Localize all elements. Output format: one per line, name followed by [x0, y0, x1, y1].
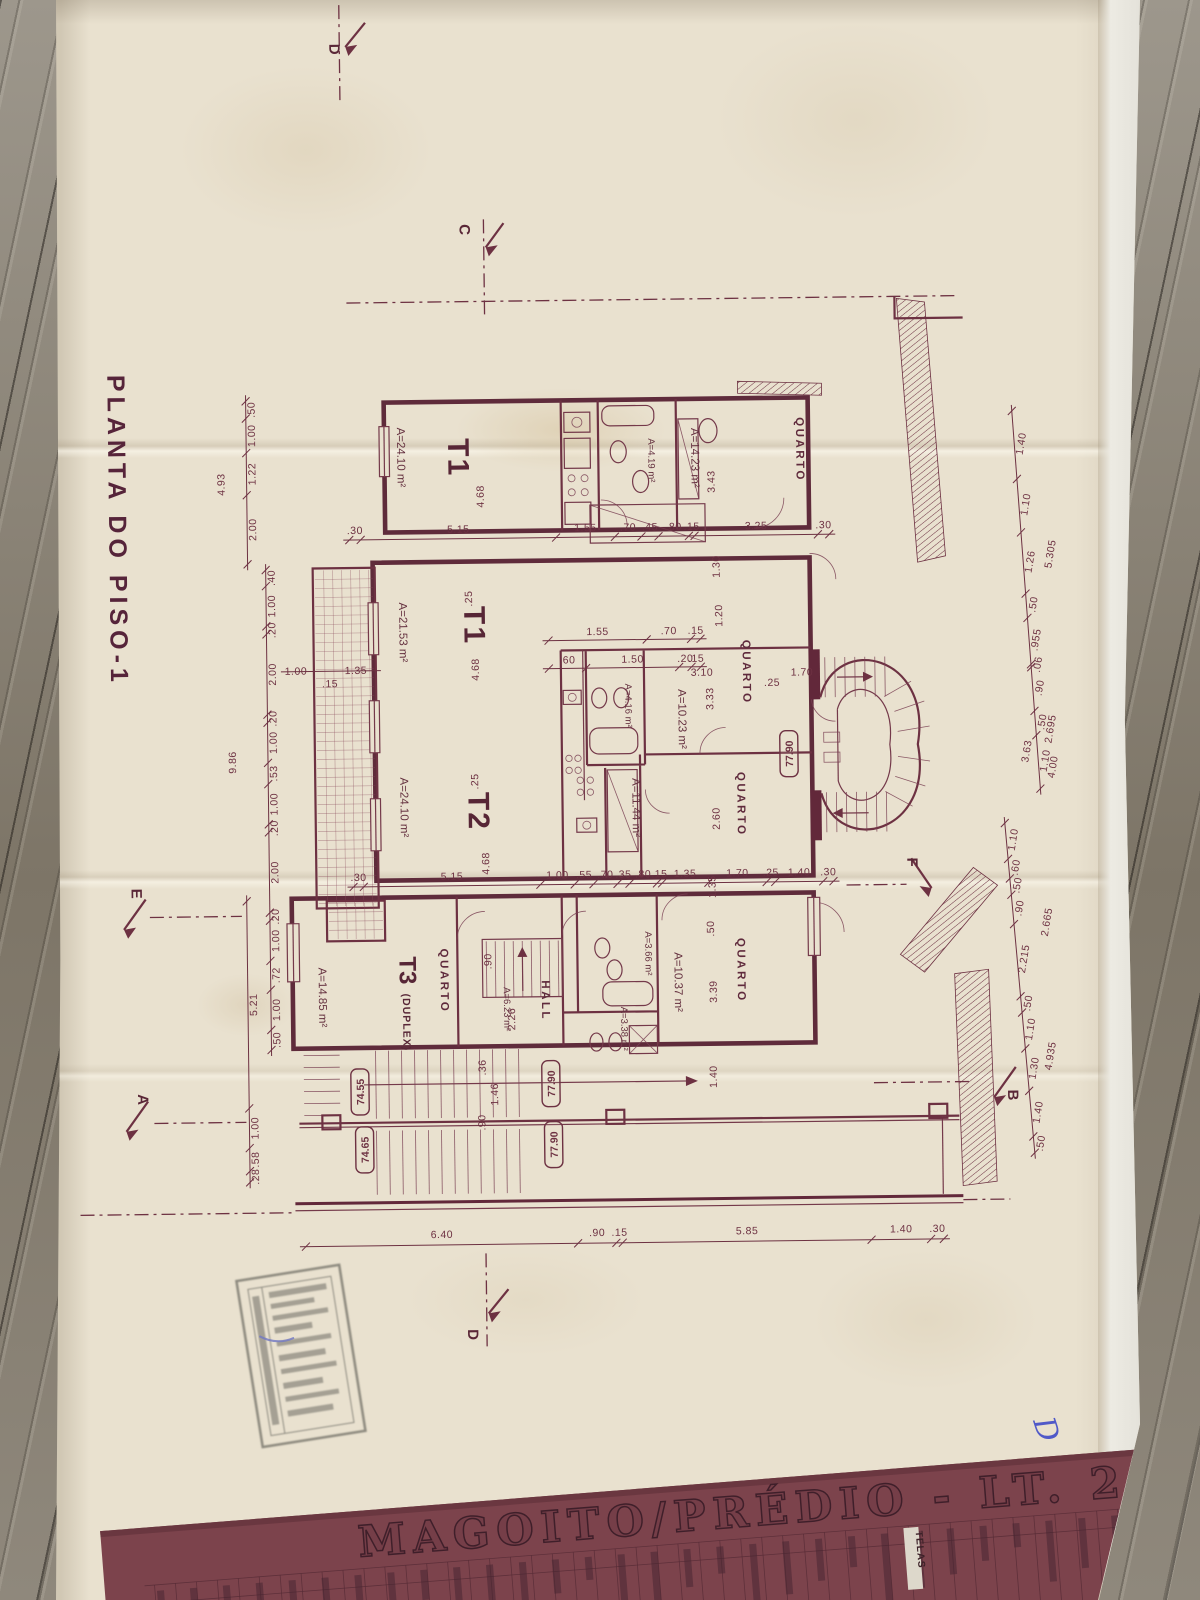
svg-text:3.10: 3.10: [691, 667, 714, 679]
svg-text:.30: .30: [929, 1223, 945, 1235]
svg-text:4.00: 4.00: [1045, 755, 1060, 779]
svg-text:1.00: 1.00: [249, 1117, 261, 1140]
svg-text:5.85: 5.85: [736, 1225, 759, 1237]
room-label-quarto: QUARTO: [437, 949, 450, 1014]
area-label: A=11.44 m²: [629, 778, 642, 837]
svg-text:B: B: [1004, 1089, 1021, 1100]
svg-text:.20: .20: [267, 710, 279, 726]
svg-text:.28: .28: [250, 1169, 262, 1185]
svg-text:4.935: 4.935: [1042, 1041, 1058, 1071]
svg-text:1.26: 1.26: [1023, 550, 1038, 574]
svg-text:2.215: 2.215: [1016, 944, 1032, 974]
svg-text:.60: .60: [559, 654, 575, 666]
svg-text:1.55: 1.55: [574, 522, 597, 534]
svg-text:.90: .90: [1012, 899, 1026, 917]
floor-plan-drawing: .501.001.222.00.401.00.202.00.201.00.531…: [0, 0, 1200, 1600]
svg-text:2.00: 2.00: [247, 518, 259, 541]
svg-text:74.55: 74.55: [355, 1079, 367, 1106]
svg-text:2.00: 2.00: [267, 663, 279, 686]
svg-text:1.22: 1.22: [246, 463, 258, 486]
room-label-quarto: QUARTO: [734, 938, 747, 1003]
svg-text:4.93: 4.93: [215, 473, 227, 496]
svg-text:1.40: 1.40: [890, 1223, 913, 1235]
svg-text:.06: .06: [1031, 656, 1045, 674]
svg-text:3.63: 3.63: [1019, 739, 1034, 763]
area-label: A=4.19 m²: [645, 438, 657, 482]
area-label: A=10.23 m²: [675, 689, 688, 749]
svg-text:1.40: 1.40: [1014, 432, 1029, 456]
svg-text:.70: .70: [661, 625, 677, 637]
svg-text:1.30: 1.30: [1027, 1056, 1042, 1080]
svg-text:.50: .50: [705, 921, 717, 937]
svg-text:.70: .70: [620, 522, 636, 534]
svg-text:1.40: 1.40: [1031, 1100, 1046, 1124]
area-label: A=3.66 m²: [642, 931, 654, 975]
svg-text:1.00: 1.00: [268, 731, 280, 754]
unit-label-t3: T3: [393, 956, 420, 984]
svg-text:5.21: 5.21: [248, 993, 260, 1016]
svg-text:1.70: 1.70: [726, 867, 749, 879]
svg-text:.90: .90: [589, 1227, 605, 1239]
section-marker-b: B: [874, 1067, 1021, 1108]
svg-text:F: F: [903, 858, 920, 867]
svg-text:.15: .15: [688, 653, 704, 665]
svg-text:A: A: [134, 1094, 151, 1105]
svg-text:1.10: 1.10: [1018, 492, 1033, 516]
svg-text:1.40: 1.40: [788, 866, 811, 878]
svg-text:1.00: 1.00: [271, 999, 283, 1022]
svg-text:.50: .50: [271, 1032, 283, 1048]
svg-text:.58: .58: [250, 1151, 262, 1167]
section-marker-d-bottom: D: [463, 1253, 509, 1347]
svg-text:.25: .25: [764, 677, 780, 689]
svg-text:1.00: 1.00: [268, 793, 280, 816]
svg-text:.955: .955: [1028, 628, 1043, 652]
svg-text:.35: .35: [615, 869, 631, 881]
hatch-slope-wing: [899, 867, 998, 972]
svg-text:.80: .80: [665, 521, 681, 533]
area-label: A=14.85 m²: [316, 967, 329, 1027]
svg-text:.15: .15: [651, 868, 667, 880]
svg-text:E: E: [128, 889, 145, 899]
svg-text:2.00: 2.00: [269, 861, 281, 884]
svg-text:1.00: 1.00: [270, 929, 282, 952]
svg-text:.45: .45: [642, 521, 658, 533]
svg-text:.15: .15: [683, 521, 699, 533]
svg-text:3.39: 3.39: [708, 980, 720, 1003]
svg-text:.15: .15: [611, 1227, 627, 1239]
svg-text:.20: .20: [269, 820, 281, 836]
svg-text:2.60: 2.60: [711, 807, 723, 830]
svg-text:.15: .15: [688, 625, 704, 637]
svg-text:.90: .90: [482, 953, 494, 969]
room-label-quarto: QUARTO: [740, 640, 753, 705]
svg-text:.20: .20: [266, 622, 278, 638]
svg-text:.50: .50: [1034, 1134, 1048, 1152]
unit-label-t2: T2: [461, 792, 494, 831]
unit-label-t1-top: T1: [441, 438, 474, 477]
unit-label-t1-mid: T1: [457, 606, 490, 645]
svg-text:.25: .25: [463, 590, 475, 606]
svg-text:.30: .30: [347, 525, 363, 537]
handwritten-mark: D: [1025, 1412, 1066, 1447]
svg-text:.30: .30: [815, 519, 831, 531]
svg-text:.20: .20: [270, 908, 282, 924]
svg-text:1.30: 1.30: [711, 555, 723, 578]
svg-text:.50: .50: [246, 402, 258, 418]
svg-text:9.86: 9.86: [227, 751, 239, 774]
svg-text:.72: .72: [271, 967, 283, 983]
section-marker-e: E: [124, 887, 243, 938]
svg-text:1.00: 1.00: [246, 424, 258, 447]
exterior-stairs: [299, 1044, 961, 1202]
hatch-strip-top: [737, 380, 821, 396]
area-label: A=10.37 m²: [671, 952, 684, 1012]
svg-text:.70: .70: [597, 869, 613, 881]
room-label-quarto: QUARTO: [793, 417, 806, 482]
svg-text:1.20: 1.20: [713, 604, 725, 627]
svg-text:6.40: 6.40: [431, 1229, 454, 1241]
plan-linework: .501.001.222.00.401.00.202.00.201.00.531…: [66, 0, 1069, 1351]
elevation-marker: 77.90: [780, 731, 799, 777]
elevation-marker: 77.90: [542, 1061, 561, 1107]
unit-label-t3-duplex: (DUPLEX): [400, 994, 413, 1052]
hatch-retaining-wall-right: [896, 298, 945, 563]
section-marker-f: F: [846, 857, 931, 898]
svg-text:.80: .80: [635, 868, 651, 880]
svg-text:2.665: 2.665: [1039, 907, 1055, 937]
area-label: A=14.23 m²: [688, 428, 701, 488]
svg-text:1.35: 1.35: [706, 875, 718, 898]
svg-text:.25: .25: [763, 867, 779, 879]
svg-text:D: D: [464, 1329, 481, 1340]
svg-text:1.55: 1.55: [586, 626, 609, 638]
svg-text:.60: .60: [1009, 858, 1023, 876]
svg-text:3.33: 3.33: [704, 687, 716, 710]
elevation-marker: 74.55: [351, 1069, 370, 1115]
svg-text:.50: .50: [1021, 994, 1035, 1012]
svg-text:C: C: [455, 224, 472, 235]
svg-text:1.70: 1.70: [791, 666, 814, 678]
svg-text:.50: .50: [1026, 596, 1040, 614]
svg-text:.53: .53: [268, 765, 280, 781]
area-label: A=24.10 m²: [394, 427, 407, 487]
svg-text:77.90: 77.90: [784, 740, 796, 767]
svg-text:1.10: 1.10: [1023, 1017, 1038, 1041]
svg-text:5.15: 5.15: [447, 524, 470, 536]
svg-text:1.10: 1.10: [1006, 828, 1021, 852]
svg-text:.50: .50: [1010, 876, 1024, 894]
svg-text:.30: .30: [820, 866, 836, 878]
svg-text:1.00: 1.00: [546, 869, 569, 881]
svg-text:D: D: [325, 44, 342, 55]
balcony-tile-grid: [315, 570, 377, 907]
svg-text:4.68: 4.68: [475, 485, 487, 508]
svg-text:.15: .15: [322, 678, 338, 690]
svg-text:3.43: 3.43: [705, 470, 717, 493]
elevation-marker: 77.90: [544, 1121, 563, 1167]
svg-text:1.46: 1.46: [489, 1083, 501, 1106]
site-boundary-top: [346, 296, 954, 303]
svg-text:1.35: 1.35: [345, 665, 368, 677]
svg-text:.40: .40: [266, 570, 278, 586]
area-label: A=6.23 m²: [501, 987, 513, 1031]
svg-text:.36: .36: [477, 1059, 489, 1075]
area-label: A=3.38 m²: [618, 1007, 630, 1051]
section-marker-d-top: D: [325, 5, 366, 103]
svg-text:.55: .55: [576, 869, 592, 881]
area-label: A=4.16 m²: [622, 684, 634, 728]
room-label-hall: HALL: [539, 980, 551, 1021]
elevation-marker: 74.65: [355, 1127, 374, 1173]
svg-text:1.00: 1.00: [266, 595, 278, 618]
ground-line-ext-right: [963, 1199, 1010, 1200]
svg-text:.30: .30: [350, 872, 366, 884]
svg-text:.25: .25: [469, 773, 481, 789]
title-block-band: MAGOITO/PRÉDIO - LT. 2A TELAS: [100, 1447, 1181, 1600]
stair-tower: [809, 648, 931, 840]
room-label-quarto: QUARTO: [734, 772, 747, 837]
area-label: A=24.10 m²: [397, 777, 410, 837]
svg-text:4.68: 4.68: [470, 658, 482, 681]
ground-line: [295, 1196, 963, 1204]
svg-text:77.90: 77.90: [549, 1131, 561, 1158]
svg-text:1.00: 1.00: [285, 666, 308, 678]
svg-text:3.25: 3.25: [745, 520, 768, 532]
section-marker-c: C: [455, 219, 504, 320]
svg-text:74.65: 74.65: [360, 1137, 372, 1164]
svg-text:4.68: 4.68: [480, 852, 492, 875]
svg-text:.90: .90: [476, 1114, 488, 1130]
svg-text:5.15: 5.15: [441, 871, 464, 883]
svg-text:1.35: 1.35: [674, 868, 697, 880]
area-label: A=21.53 m²: [396, 602, 409, 662]
svg-text:1.50: 1.50: [621, 653, 644, 665]
photo-scene: .501.001.222.00.401.00.202.00.201.00.531…: [0, 0, 1200, 1600]
plan-title: PLANTA DO PISO-1: [101, 375, 133, 687]
rubber-stamp: [236, 1265, 365, 1447]
ground-line-ext-left: [81, 1213, 294, 1216]
hatch-slope-band: [955, 969, 998, 1185]
svg-text:77.90: 77.90: [546, 1070, 558, 1097]
svg-text:1.40: 1.40: [708, 1065, 720, 1088]
svg-text:5.305: 5.305: [1042, 539, 1058, 569]
svg-text:.90: .90: [1033, 679, 1047, 697]
section-marker-a: A: [126, 1093, 247, 1141]
